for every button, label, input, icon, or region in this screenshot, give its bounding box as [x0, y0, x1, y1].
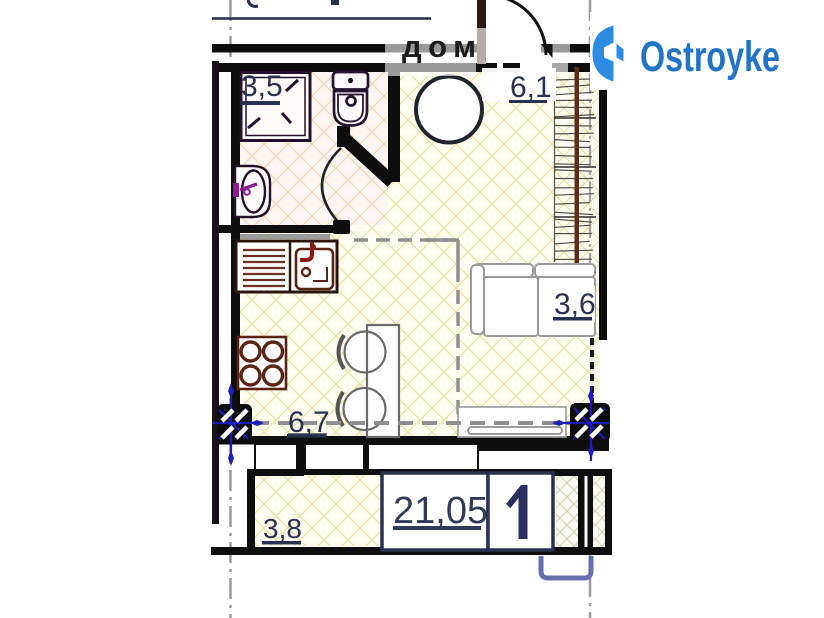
svg-text:6,1: 6,1	[510, 71, 552, 104]
svg-text:дом: дом	[402, 29, 477, 64]
svg-text:Ostroyke: Ostroyke	[640, 33, 780, 81]
svg-text:3,6: 3,6	[554, 288, 596, 321]
svg-text:3,8: 3,8	[263, 513, 302, 544]
svg-text:3,5: 3,5	[241, 70, 283, 103]
svg-text:21,05: 21,05	[393, 490, 488, 532]
